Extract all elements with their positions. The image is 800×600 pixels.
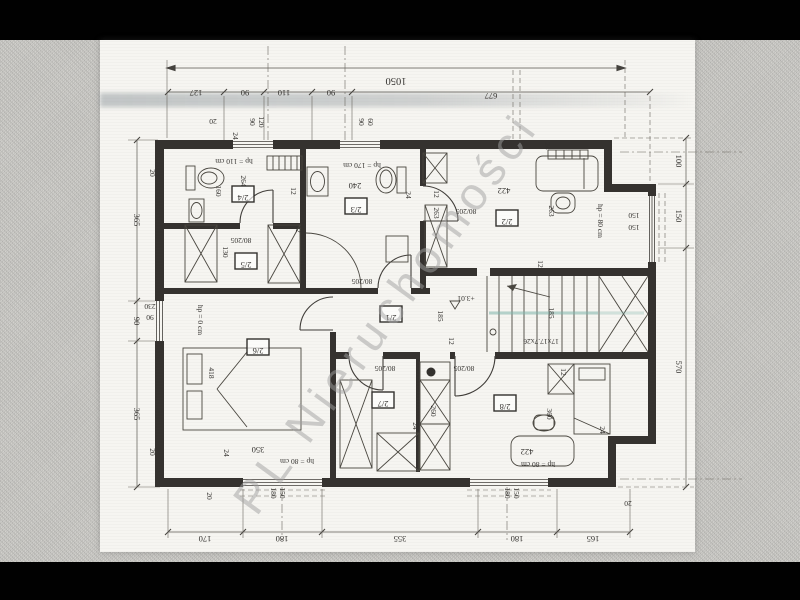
room-label-2-2: 2/2 <box>496 210 518 227</box>
room-label-2-1: 2/1 <box>380 306 402 323</box>
dim-total-width: 1050 <box>386 75 407 86</box>
window-150x150 <box>648 193 665 265</box>
window-size-label: 90 <box>357 118 366 126</box>
wardrobe-icon <box>268 225 300 283</box>
dim-label: 110 <box>278 88 290 98</box>
dim-label: 360 <box>545 408 554 420</box>
door-size-label: 80/205 <box>453 364 474 373</box>
window-90x60 <box>340 140 380 149</box>
dim-offset: 24 <box>222 449 231 457</box>
dim-label: 185 <box>436 310 445 322</box>
dim-label: 90 <box>132 317 142 326</box>
wall-thickness-label: 12 <box>559 368 568 376</box>
dim-label: 90 <box>241 88 250 98</box>
dim-offset: 24 <box>404 191 413 199</box>
sill-height-label: hp = 0 cm <box>196 305 205 335</box>
duct-shaft-icon <box>423 153 447 183</box>
door-size-label: 80/205 <box>455 207 476 216</box>
window-size-label: 120 <box>257 116 266 128</box>
dim-label: 263 <box>547 205 556 217</box>
window-size-label: 60 <box>366 118 375 126</box>
window-size-label: 90 <box>248 118 257 126</box>
dim-label: 150 <box>674 210 684 223</box>
window-size-label: 180 <box>269 487 278 499</box>
dim-offset: 24 <box>411 422 420 430</box>
dim-label: 230 <box>144 302 156 311</box>
dim-label: 418 <box>207 367 216 379</box>
stairs-spec-label: 17x17.7x26 <box>523 337 559 346</box>
wardrobe-icon <box>340 380 372 468</box>
door-arc <box>378 255 411 288</box>
window-size-label: 180 <box>503 487 512 499</box>
dim-offset: 20 <box>148 448 157 456</box>
sill-height-label: hp = 170 cm <box>343 161 381 170</box>
door-size-label: 80/205 <box>374 364 395 373</box>
room-number: 2/5 <box>241 260 252 270</box>
dim-label: 90 <box>327 88 336 98</box>
window-size-label: 150 <box>628 211 640 220</box>
wall-thickness-label: 12 <box>289 187 298 195</box>
wall-thickness-label: 12 <box>432 190 441 198</box>
dim-label: 180 <box>276 534 289 544</box>
room-label-2-3: 2/3 <box>345 198 367 215</box>
dim-label: 677 <box>485 91 498 101</box>
window-size-label: 150 <box>512 487 521 499</box>
bottom-letterbox-bar <box>0 562 800 600</box>
dim-label: 170 <box>199 534 212 544</box>
door-size-label: 80/205 <box>351 277 372 286</box>
bed-icon <box>574 364 610 434</box>
sill-height-label: hp = 80 cm <box>596 204 605 238</box>
dim-offset: 20 <box>209 117 217 126</box>
room-number: 2/2 <box>502 217 513 227</box>
wall-thickness-label: 12 <box>294 225 303 233</box>
room-label-2-4: 2/4 <box>232 186 254 203</box>
dim-label: 127 <box>190 88 203 98</box>
room-label-2-8: 2/8 <box>494 395 516 412</box>
door-size-label: 80/205 <box>230 236 251 245</box>
dim-offset: 20 <box>205 492 214 500</box>
dim-label: 100 <box>674 155 684 168</box>
soil-stack-icon <box>427 368 436 377</box>
sill-height-label: hp = 110 cm <box>215 157 253 166</box>
dim-label: 160 <box>214 185 223 197</box>
stair-direction-arrow <box>507 284 517 291</box>
room-number: 2/4 <box>237 193 249 203</box>
wall-thickness-label: 12 <box>447 337 456 345</box>
wall-thickness-label: 12 <box>536 260 545 268</box>
room-number: 2/1 <box>386 313 397 323</box>
dim-label: 240 <box>349 181 362 191</box>
dim-offset: 24 <box>598 426 607 434</box>
dim-label: 185 <box>547 307 556 319</box>
window-size-label: 150 <box>278 487 287 499</box>
sill-height-label: hp = 80 cm <box>521 460 555 469</box>
radiator-icon <box>267 156 302 170</box>
dim-label: 422 <box>498 186 511 196</box>
room-label-2-7: 2/7 <box>372 392 394 409</box>
screenshot: 2/1 2/2 2/3 2/4 2/5 2/6 <box>0 0 800 600</box>
window-size-label: 150 <box>628 223 640 232</box>
window-90x120 <box>233 140 273 149</box>
bed-icon <box>536 156 598 191</box>
dim-label: 350 <box>252 445 265 455</box>
room-number: 2/6 <box>253 346 264 356</box>
dim-label: 165 <box>587 534 600 544</box>
dim-offset: 24 <box>231 132 240 140</box>
dim-label: 355 <box>394 534 407 544</box>
dim-offset: 24 <box>543 142 552 150</box>
wardrobe-icon <box>185 225 217 282</box>
room-label-2-5: 2/5 <box>235 253 257 270</box>
dim-label: 365 <box>132 408 142 421</box>
stair-post <box>490 329 496 335</box>
door-arc <box>455 356 495 396</box>
radiator-icon <box>548 150 588 159</box>
dim-offset: 20 <box>148 169 157 177</box>
sill-height-label: hp = 80 cm <box>280 457 314 466</box>
dim-label: 365 <box>132 214 142 227</box>
room-number: 2/8 <box>500 402 511 412</box>
wardrobe-icon <box>377 433 419 471</box>
room-number: 2/7 <box>378 399 389 409</box>
dim-label: 570 <box>674 361 684 374</box>
door-arc <box>300 297 333 330</box>
sink-icon <box>307 167 328 196</box>
dim-label: 422 <box>521 447 534 457</box>
dim-offset: 20 <box>624 499 632 508</box>
dim-label: 264 <box>239 175 248 187</box>
room-number: 2/3 <box>351 205 362 215</box>
dim-label: 180 <box>511 534 524 544</box>
level-label: +3.01 <box>457 294 475 303</box>
floorplan-drawing: 2/1 2/2 2/3 2/4 2/5 2/6 <box>0 0 800 600</box>
bed-icon <box>183 348 301 430</box>
dim-label: 263 <box>432 207 441 219</box>
dim-label: 260 <box>429 405 438 417</box>
sink-icon <box>189 199 204 222</box>
room-label-2-6: 2/6 <box>247 339 269 356</box>
dim-label: 130 <box>221 246 230 258</box>
dim-label: 90 <box>146 313 154 322</box>
